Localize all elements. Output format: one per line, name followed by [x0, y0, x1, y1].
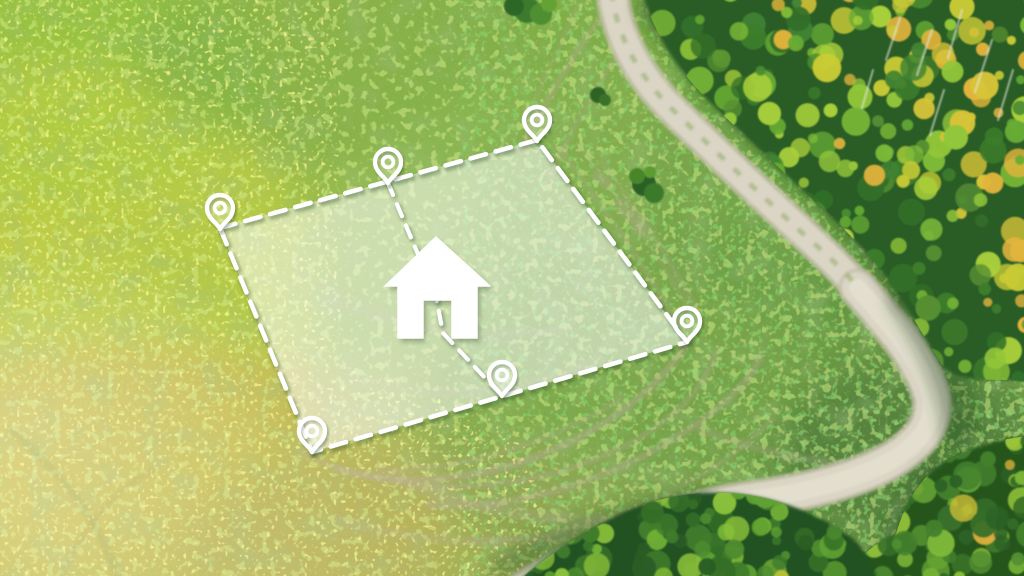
- aerial-land-plot-photo: [0, 0, 1024, 576]
- bush: [629, 168, 645, 184]
- dirt-trail: [596, 176, 606, 184]
- bush: [644, 166, 656, 178]
- bush: [599, 94, 611, 106]
- bush: [644, 183, 664, 203]
- aerial-photo-stage: [0, 0, 1024, 576]
